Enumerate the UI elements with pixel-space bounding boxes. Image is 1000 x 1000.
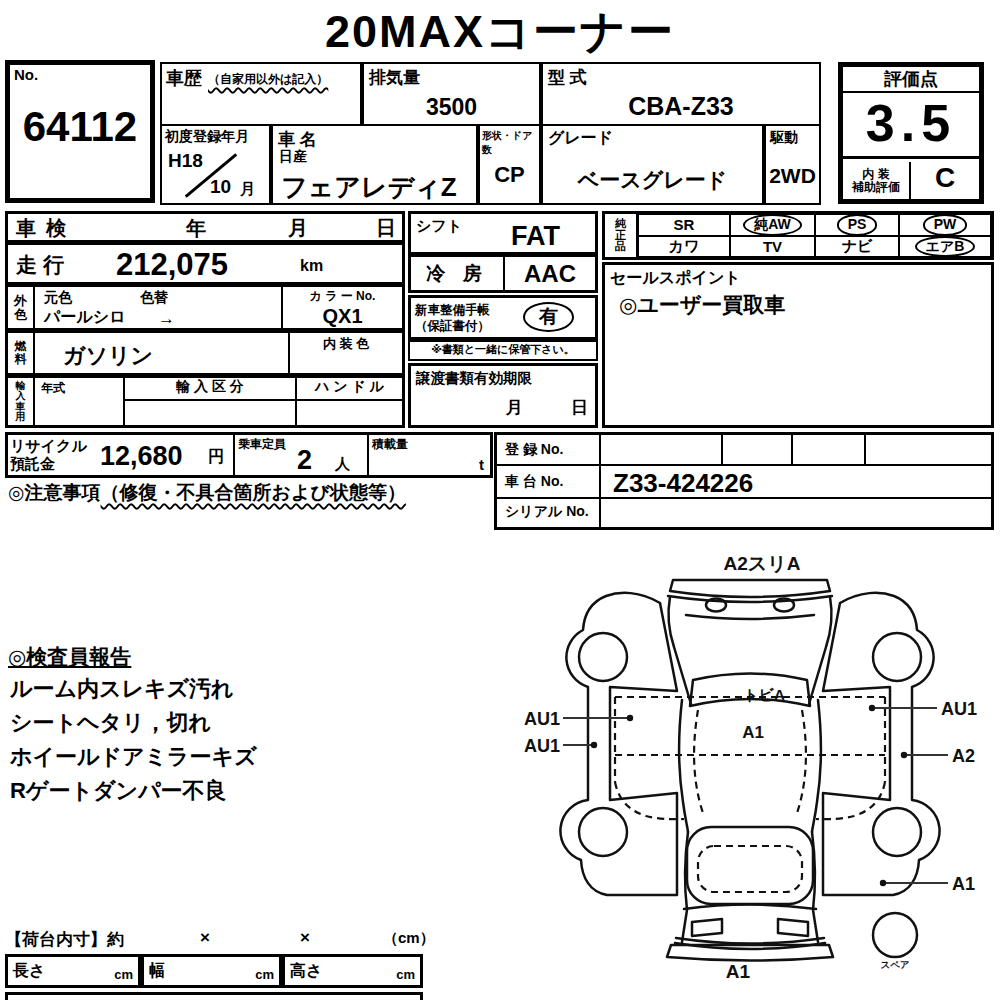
label-right-sill: A2 [952, 746, 975, 766]
rear-window [698, 846, 802, 892]
right-front-wheel [873, 633, 921, 681]
taillight-band [684, 905, 816, 910]
sales-point-value: ◎ユーザー買取車 [619, 291, 785, 319]
shift-label: シフト [416, 217, 462, 236]
oem-grid: 純 正 品 SR 純AW PS PW カワ TV ナビ エアB [602, 211, 994, 260]
left-rear-wheel [579, 808, 627, 856]
cargo-times: × [300, 928, 310, 948]
oem-item-navi: ナビ [815, 236, 899, 258]
interior-color-label: 内 装 色 [290, 333, 402, 353]
handle-cell: ハ ン ド ル [295, 378, 402, 425]
transfer-docs-cell: 譲渡書類有効期限 月 日 [408, 363, 598, 428]
recycle-label: リサイクル 預託金 [10, 437, 87, 473]
label-windshield: トビA [743, 686, 785, 703]
lot-number: 64112 [10, 103, 150, 151]
sales-point-label: セールスポイント [610, 268, 741, 289]
registration-row: 登 録 No. [497, 435, 991, 466]
oem-item-pw: PW [899, 214, 991, 236]
interior-color-cell: 内 装 色 [288, 333, 402, 373]
rating-box: 評価点 3.5 内 装 補助評価 C [838, 62, 984, 204]
report-line: Rゲートダンパー不良 [10, 776, 226, 806]
car-damage-diagram: A2スリA トビA A1 AU1 AU1 AU1 A2 A1 A1 スペア [500, 548, 1000, 1000]
service-book-label: 新車整備手帳 （保証書付） [415, 302, 490, 335]
label-spare: スペア [880, 959, 909, 970]
label-front: A2スリA [724, 553, 801, 574]
body-doors-cell: 形状・ドア数 CP [478, 124, 541, 205]
cargo-cm: cm [114, 967, 133, 982]
marker-dot [591, 742, 597, 748]
label-roof: A1 [742, 723, 764, 742]
cargo-height-label: 高さ [290, 961, 322, 982]
shaken-label: 車検 [16, 215, 76, 242]
cargo-height-cell: 高さ cm [282, 954, 423, 988]
drive-value: 2WD [766, 164, 819, 188]
exterior-color-value: パールシロ [44, 307, 126, 328]
grade-cell: グレード ベースグレード [541, 124, 764, 205]
cargo-width-label: 幅 [149, 961, 165, 982]
front-bumper [670, 580, 830, 597]
history-note: （自家用以外は記入） [208, 71, 328, 88]
payload-unit: t [479, 456, 484, 473]
serial-label: シリアル No. [497, 499, 601, 527]
door-cut-right [816, 782, 885, 819]
exterior-color-row: 外 色 元色 色替 パールシロ → カ ラ ー No. QX1 [5, 284, 405, 331]
chassis-row: 車 台 No. Z33-424226 [497, 466, 991, 499]
displacement-value: 3500 [364, 94, 539, 121]
rating-label: 評価点 [843, 67, 979, 93]
body-doors-value: CP [480, 162, 539, 188]
mileage-row: 走行 212,075 km [5, 242, 405, 285]
history-cell: 車歴 （自家用以外は記入） [160, 62, 362, 126]
chassis-value: Z33-424226 [613, 468, 753, 499]
service-book-value: 有 [523, 302, 574, 332]
front-panel-line [686, 615, 814, 619]
report-line: シートヘタリ，切れ [10, 708, 211, 738]
import-division-label: 輸 入 区 分 [125, 378, 295, 401]
cargo-width-cell: 幅 cm [141, 954, 282, 988]
import-row: 輸 入 車 用 年式 輸 入 区 分 ハ ン ド ル [5, 375, 405, 428]
displacement-label: 排気量 [369, 66, 420, 89]
label-rear: A1 [726, 961, 751, 982]
color-change-arrow: → [158, 309, 175, 329]
shift-value: FAT [511, 221, 560, 252]
mileage-value: 212,075 [116, 247, 228, 283]
transfer-label: 譲渡書類有効期限 [416, 369, 532, 388]
payload-label: 積載量 [372, 436, 408, 453]
chassis-label: 車 台 No. [497, 466, 601, 497]
import-label: 輸 入 車 用 [8, 378, 35, 425]
model-code-value: CBA-Z33 [543, 92, 819, 121]
oem-item-sr: SR [638, 214, 730, 236]
ac-cell: 冷 房 AAC [408, 254, 598, 293]
interior-rating-value: C [911, 162, 979, 199]
exterior-color-label: 外 色 [8, 287, 35, 328]
fuel-value: ガソリン [63, 341, 153, 371]
body-side-left-front [669, 597, 691, 704]
transfer-day: 日 [571, 396, 588, 419]
cargo-cm: cm [255, 967, 274, 982]
marker-dot [901, 752, 907, 758]
label-left-door: AU1 [524, 709, 560, 729]
inspector-report-title: ◎検査員報告 [8, 643, 131, 671]
shaken-row: 車検 年 月 日 [5, 211, 405, 243]
grade-value: ベースグレード [543, 166, 762, 194]
marker-dot [627, 715, 633, 721]
cargo-partial-row [5, 992, 423, 1000]
body-side-left [679, 700, 688, 832]
registration-label: 登 録 No. [497, 435, 601, 464]
first-reg-year: H18 [168, 150, 203, 172]
report-line: ホイールドアミラーキズ [10, 742, 257, 772]
fuel-row: 燃 料 ガソリン 内 装 色 [5, 330, 405, 376]
model-code-cell: 型 式 CBA-Z33 [541, 62, 821, 126]
model-code-label: 型 式 [548, 66, 587, 89]
oem-item-tv: TV [730, 236, 815, 258]
oem-item-leather: カワ [638, 236, 730, 258]
shaken-day: 日 [376, 215, 396, 242]
rear-bumper [667, 945, 833, 961]
first-reg-month: 10 [210, 176, 231, 198]
body-door-right [796, 710, 806, 816]
keep-note: ※書類と一緒に保管下さい。 [408, 340, 598, 361]
import-division-cell: 輸 入 区 分 [123, 378, 295, 425]
capacity-cell: 乗車定員 2 人 [233, 435, 367, 475]
first-reg-month-unit: 月 [240, 180, 255, 199]
shaken-year: 年 [186, 215, 206, 242]
history-label: 車歴 [166, 66, 202, 90]
mileage-label: 走行 [16, 251, 70, 279]
payload-cell: 積載量 t [367, 435, 490, 475]
transfer-month: 月 [506, 396, 523, 419]
orig-color-label: 元色 [44, 289, 72, 307]
registration-block: 登 録 No. 車 台 No. Z33-424226 シリアル No. [494, 432, 994, 530]
label-left-sill: AU1 [524, 736, 560, 756]
recycle-unit: 円 [208, 447, 224, 468]
label-right-quarter: A1 [952, 874, 975, 894]
left-front-wheel [579, 633, 627, 681]
marker-dot [869, 705, 875, 711]
taillight-right [778, 919, 808, 936]
door-cut-left [615, 782, 684, 819]
right-rear-wheel [873, 808, 921, 856]
spare-tire [873, 913, 917, 957]
first-reg-label: 初度登録年月 [165, 128, 249, 146]
color-no-value: QX1 [283, 305, 402, 328]
label-right-door: AU1 [941, 699, 977, 719]
cargo-cm: cm [396, 967, 415, 982]
rating-score: 3.5 [843, 93, 979, 159]
marker-dot [880, 880, 886, 886]
handle-label: ハ ン ド ル [297, 378, 402, 401]
color-change-label: 色替 [140, 289, 168, 307]
recycle-row: リサイクル 預託金 12,680 円 乗車定員 2 人 積載量 t [5, 432, 493, 478]
lot-number-label: No. [14, 66, 38, 83]
fuel-label: 燃 料 [8, 333, 35, 373]
cargo-length-cell: 長さ cm [5, 954, 141, 988]
report-line: ルーム内スレキズ汚れ [10, 674, 234, 704]
divider [721, 435, 723, 464]
page-title: 20MAXコーナー [0, 2, 1000, 62]
auction-sheet: 20MAXコーナー No. 64112 車歴 （自家用以外は記入） 排気量 35… [0, 0, 1000, 1000]
sales-point-box: セールスポイント ◎ユーザー買取車 [602, 262, 994, 428]
grade-label: グレード [548, 128, 613, 149]
interior-rating-label: 内 装 補助評価 [843, 162, 911, 199]
oem-item-aw: 純AW [730, 214, 815, 236]
recycle-value: 12,680 [100, 441, 183, 472]
color-no-label: カ ラ ー No. [283, 287, 402, 305]
lot-number-box: No. 64112 [5, 60, 155, 203]
divider [791, 435, 793, 464]
cargo-times: × [200, 928, 210, 948]
serial-row: シリアル No. [497, 499, 991, 527]
body-side-right-front [809, 597, 831, 704]
body-doors-label: 形状・ドア数 [482, 129, 539, 157]
ac-value: AAC [505, 257, 595, 290]
oem-item-airbag: エアB [899, 236, 991, 258]
drive-cell: 駆動 2WD [764, 124, 821, 205]
capacity-unit: 人 [335, 455, 350, 474]
taillight-left [692, 919, 722, 936]
shaken-month: 月 [288, 215, 308, 242]
color-no-cell: カ ラ ー No. QX1 [281, 287, 402, 328]
import-year-label: 年式 [41, 380, 65, 397]
capacity-value: 2 [297, 445, 312, 476]
cargo-unit: （cm） [383, 929, 435, 948]
drive-label: 駆動 [770, 129, 798, 147]
shift-cell: シフト FAT [408, 211, 598, 255]
car-maker: 日産 [279, 148, 307, 166]
body-side-right [812, 700, 821, 832]
service-book-cell: 新車整備手帳 （保証書付） 有 [408, 295, 598, 340]
car-name-value: フェアレディZ [281, 170, 457, 205]
displacement-cell: 排気量 3500 [362, 62, 541, 126]
cargo-length-label: 長さ [13, 961, 45, 982]
ac-label: 冷 房 [411, 257, 505, 290]
first-reg-cell: 初度登録年月 H18 10 月 [160, 124, 271, 205]
mileage-unit: km [300, 257, 323, 275]
divider [864, 435, 866, 464]
oem-items: SR 純AW PS PW カワ TV ナビ エアB [638, 214, 991, 257]
cargo-title: 【荷台内寸】約 [5, 928, 124, 951]
notice-header: ◎注意事項（修復・不具合箇所および状態等） [8, 480, 406, 506]
rear-bumper-line-1 [676, 938, 824, 944]
capacity-label: 乗車定員 [238, 436, 286, 453]
oem-item-ps: PS [815, 214, 899, 236]
oem-label: 純 正 品 [605, 214, 638, 257]
body-door-left [694, 710, 704, 816]
car-name-cell: 車 名 日産 フェアレディZ [271, 124, 478, 205]
